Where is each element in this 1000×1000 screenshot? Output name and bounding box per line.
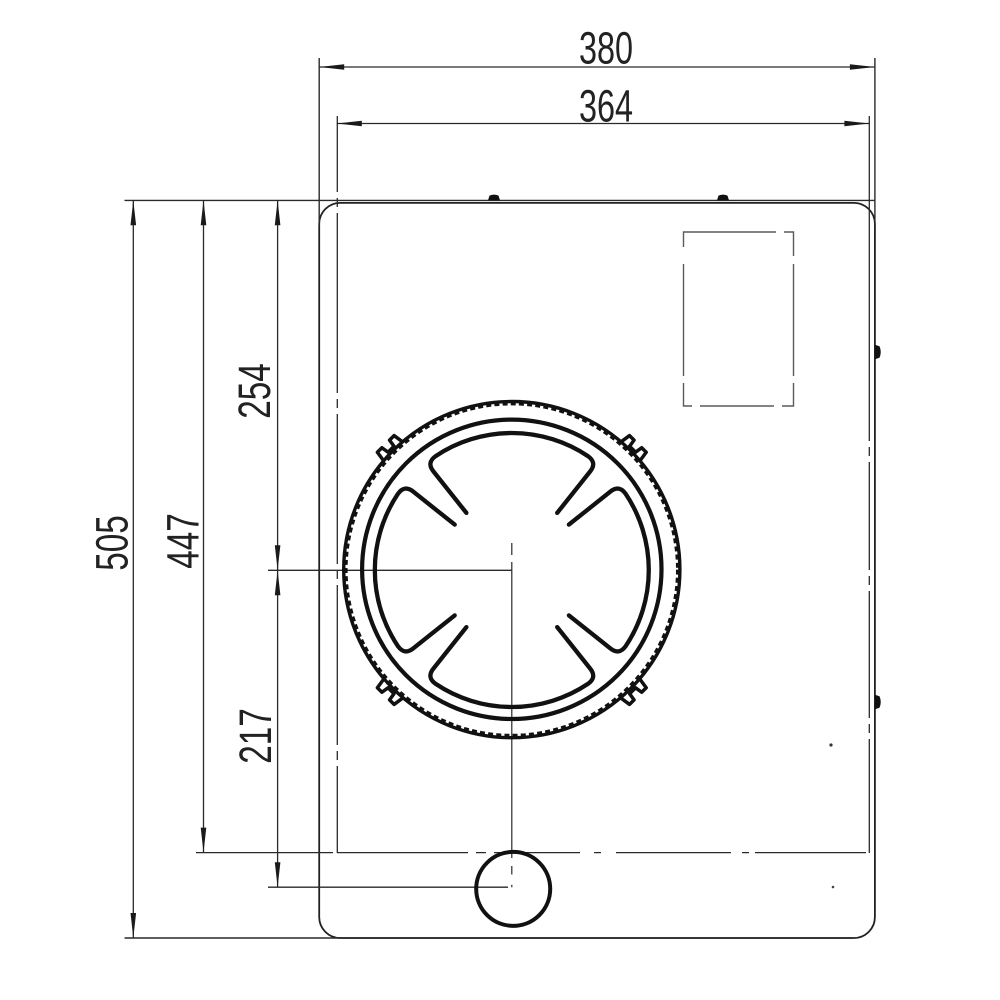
svg-text:217: 217: [231, 708, 281, 764]
svg-text:364: 364: [579, 82, 633, 131]
svg-text:447: 447: [159, 513, 209, 569]
svg-text:380: 380: [579, 24, 633, 73]
svg-text:505: 505: [88, 515, 138, 571]
svg-text:254: 254: [230, 363, 280, 419]
